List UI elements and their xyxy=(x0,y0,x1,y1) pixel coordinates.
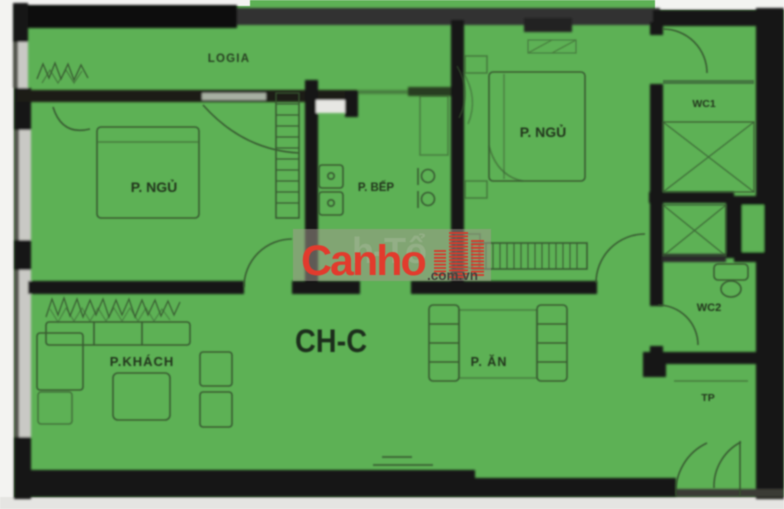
svg-text:P. NGỦ: P. NGỦ xyxy=(520,123,566,140)
svg-text:P. BẾP: P. BẾP xyxy=(358,181,395,194)
svg-text:LOGIA: LOGIA xyxy=(208,53,250,65)
svg-text:P. ĂN: P. ĂN xyxy=(471,354,508,369)
svg-text:Canho: Canho xyxy=(301,237,426,285)
svg-text:WC1: WC1 xyxy=(692,98,715,110)
svg-text:.com.vn: .com.vn xyxy=(427,268,478,283)
svg-text:TP: TP xyxy=(701,392,714,404)
svg-text:P. NGỦ: P. NGỦ xyxy=(131,178,177,195)
svg-text:CH-C: CH-C xyxy=(295,323,367,359)
svg-text:P.KHÁCH: P.KHÁCH xyxy=(110,354,175,369)
svg-text:WC2: WC2 xyxy=(697,302,721,314)
